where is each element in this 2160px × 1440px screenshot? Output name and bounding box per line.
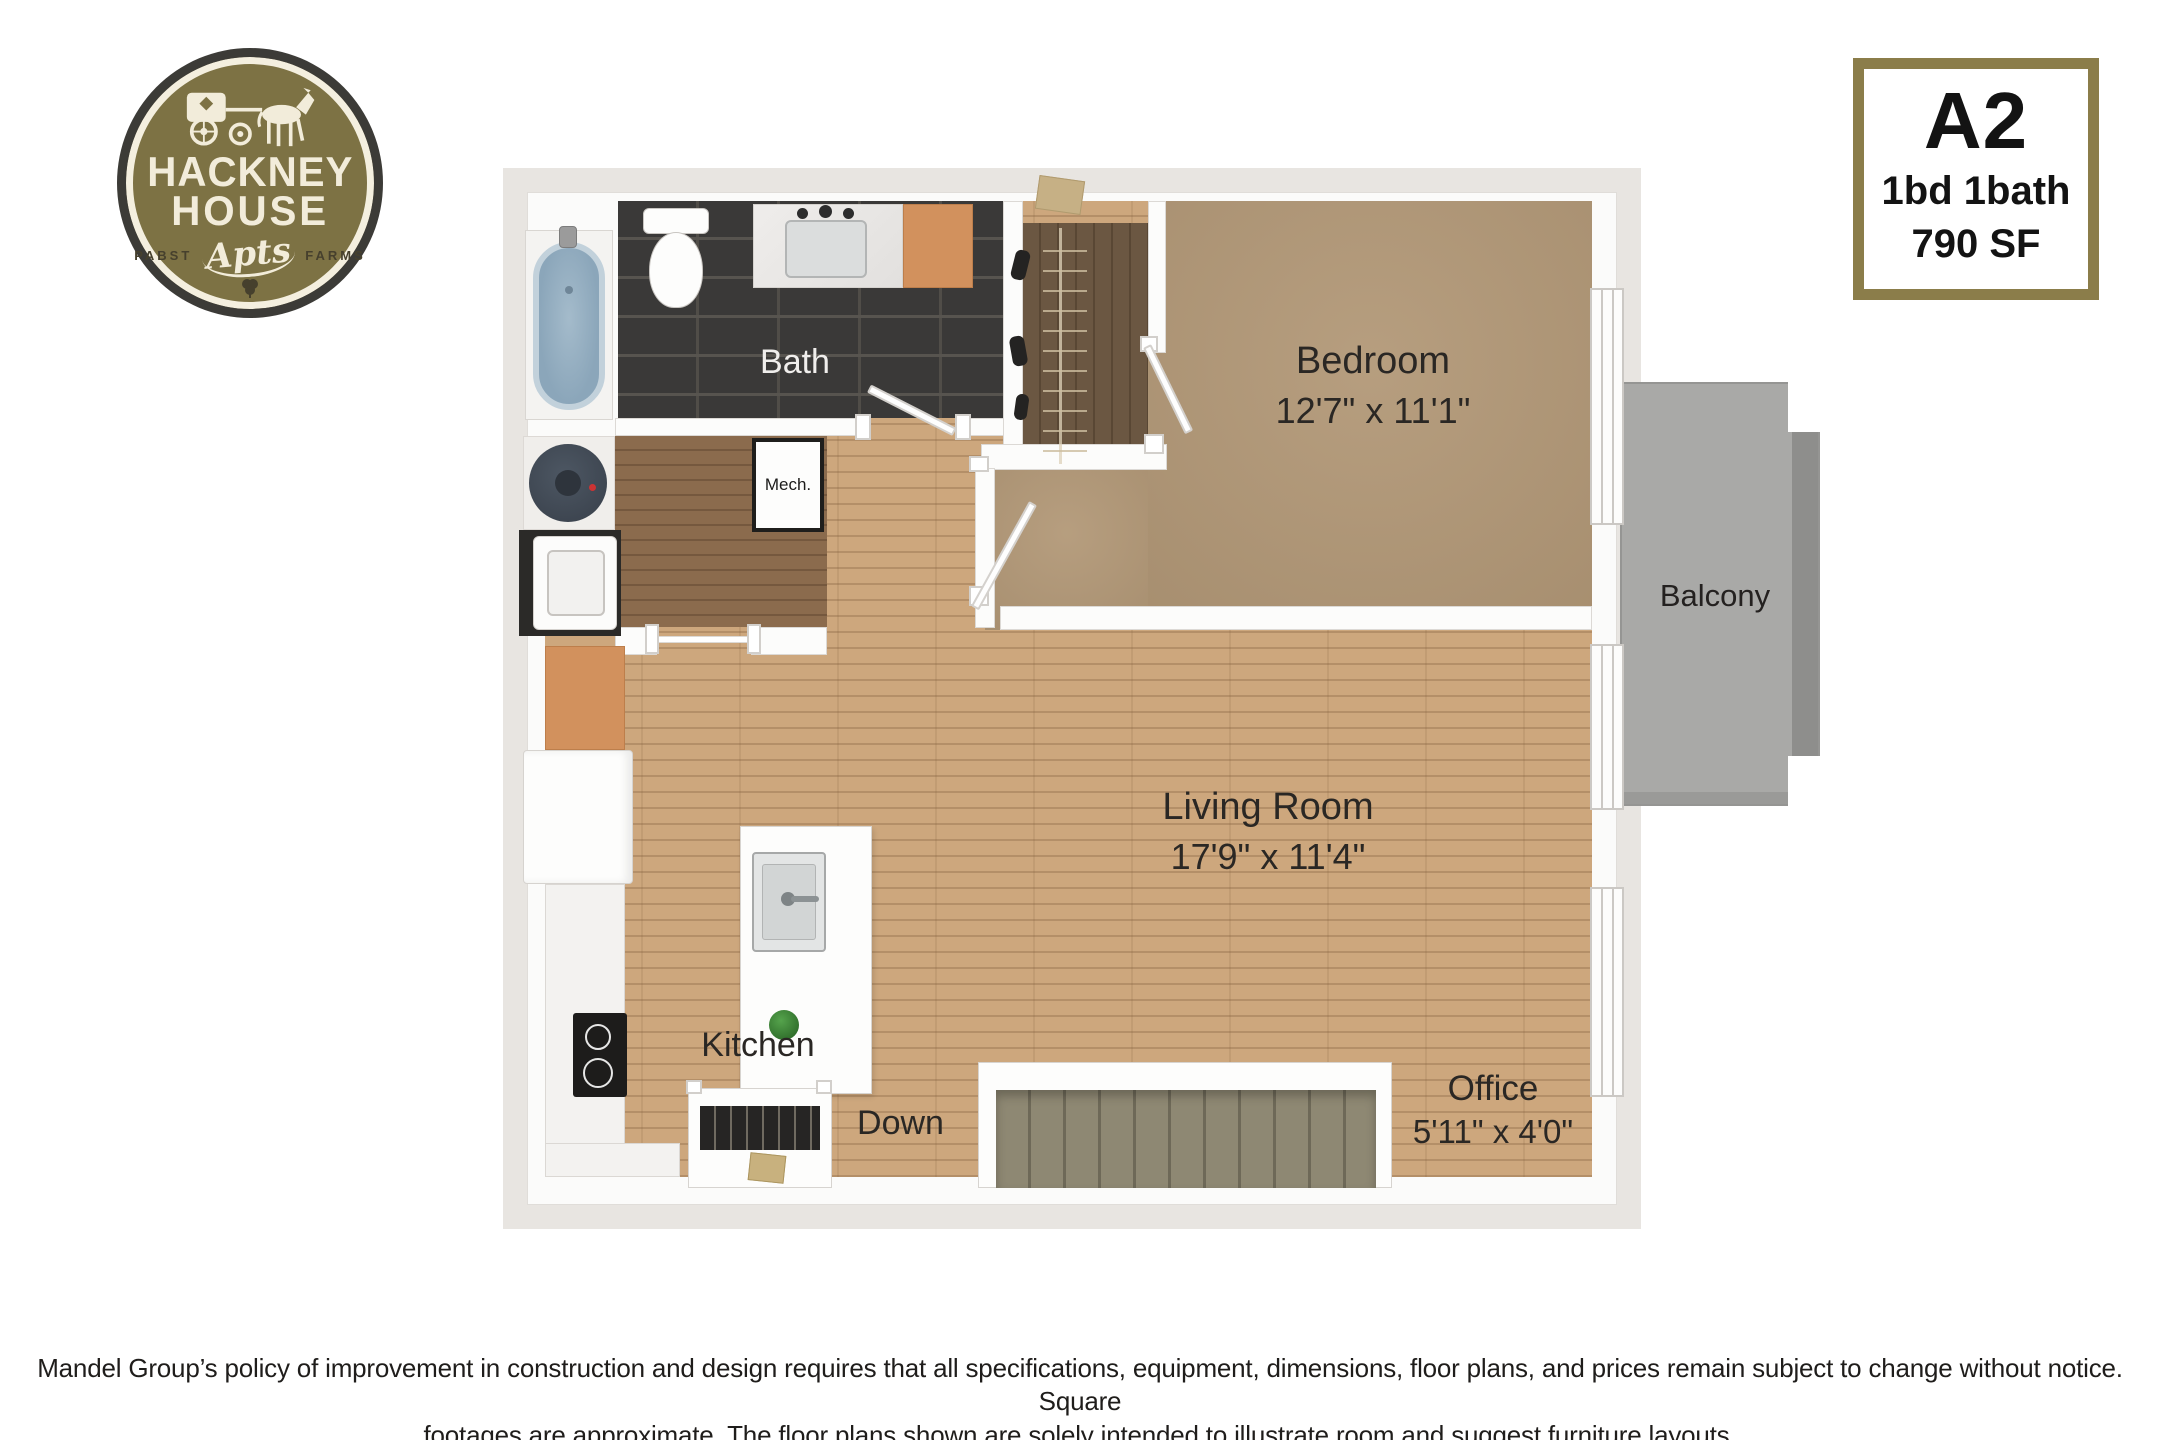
- hop-leaf-icon: [239, 278, 261, 298]
- washer-drum: [555, 470, 581, 496]
- dryer-door: [547, 550, 605, 616]
- balcony-notch: [1788, 378, 1826, 432]
- entry-closet-post: [686, 1080, 702, 1094]
- window-mullion: [1612, 290, 1614, 523]
- logo-sub-left: PABST: [134, 248, 192, 263]
- closet-hangers: [1043, 232, 1087, 458]
- unit-id: A2: [1864, 81, 2088, 161]
- bedroom-name: Bedroom: [1296, 340, 1450, 382]
- stairs-treads: [996, 1090, 1376, 1188]
- toilet: [649, 232, 703, 308]
- bedroom-bottom-wall: [1000, 606, 1592, 630]
- stove-burner: [585, 1024, 611, 1050]
- window-mullion: [1612, 889, 1614, 1095]
- kitchen-cabinet-upper: [545, 646, 625, 750]
- bath-bottom-wall-left: [615, 418, 871, 436]
- bath-door-post: [955, 414, 971, 440]
- bedroom-nook-post: [969, 456, 989, 472]
- stove-burner: [583, 1058, 613, 1088]
- floor-plan: Mech. Bath Bedroom 12'7": [503, 168, 1641, 1229]
- window-mullion: [1601, 646, 1603, 808]
- horse-carriage-icon: [175, 83, 325, 151]
- entry-closet-box: [748, 1152, 787, 1184]
- bath-cabinet: [903, 204, 973, 288]
- bedroom-dims: 12'7" x 11'1": [1193, 390, 1553, 431]
- toilet-tank: [643, 208, 709, 234]
- stairs-down-label: Down: [828, 1104, 973, 1143]
- disclaimer-line1: Mandel Group’s policy of improvement in …: [0, 1352, 2160, 1419]
- bathtub: [533, 242, 605, 410]
- tub-drain: [565, 286, 573, 294]
- kitchen-label: Kitchen: [678, 1026, 838, 1065]
- hall-door-post: [645, 624, 659, 654]
- unit-square-feet: 790 SF: [1864, 222, 2088, 267]
- unit-info-card: A2 1bd 1bath 790 SF: [1853, 58, 2099, 300]
- window-mullion: [1612, 646, 1614, 808]
- bedroom-window: [1590, 288, 1624, 525]
- mech-closet: Mech.: [752, 438, 824, 532]
- mech-label: Mech.: [765, 475, 811, 495]
- entry-closet-post: [816, 1080, 832, 1094]
- floorplan-page: HACKNEY HOUSE PABST Apts FARMS A2 1bd 1b…: [0, 0, 2160, 1440]
- faucet-spout: [819, 205, 832, 218]
- disclaimer-line2: footages are approximate. The floor plan…: [0, 1419, 2160, 1440]
- hall-bottom-wall-right: [751, 627, 827, 655]
- closet-right-wall: [1148, 201, 1166, 353]
- hall-door-post: [747, 624, 761, 654]
- office-label: Office 5'11" x 4'0": [1393, 1069, 1593, 1151]
- kitchen-counter-bottom: [545, 1143, 680, 1177]
- window-mullion: [1601, 290, 1603, 523]
- office-name: Office: [1448, 1069, 1539, 1108]
- entry-closet-interior: [700, 1106, 820, 1150]
- disclaimer-text: Mandel Group’s policy of improvement in …: [0, 1352, 2160, 1440]
- bath-door-post: [855, 414, 871, 440]
- logo-sub-script: Apts: [201, 230, 297, 281]
- balcony-door-window: [1590, 644, 1624, 810]
- bath-sink: [785, 220, 867, 278]
- logo-subtitle: PABST Apts FARMS: [134, 234, 366, 276]
- balcony-notch: [1788, 756, 1826, 810]
- faucet-handle: [843, 208, 854, 219]
- living-room-window: [1590, 887, 1624, 1097]
- faucet-handle: [797, 208, 808, 219]
- bath-label: Bath: [715, 343, 875, 382]
- hackney-house-logo: HACKNEY HOUSE PABST Apts FARMS: [117, 48, 383, 318]
- hall-sliding-door: [655, 636, 753, 643]
- window-mullion: [1601, 889, 1603, 1095]
- island-faucet-bar: [791, 896, 819, 902]
- closet-storage-box: [1035, 175, 1085, 215]
- living-room-label: Living Room 17'9" x 11'4": [1093, 786, 1443, 877]
- living-room-name: Living Room: [1162, 786, 1373, 828]
- tub-faucet: [559, 226, 577, 248]
- office-dims: 5'11" x 4'0": [1393, 1113, 1593, 1151]
- refrigerator: [523, 750, 633, 884]
- unit-beds-baths: 1bd 1bath: [1864, 169, 2088, 214]
- logo-sub-right: FARMS: [305, 248, 366, 263]
- closet-door-post: [1144, 434, 1164, 454]
- living-room-dims: 17'9" x 11'4": [1093, 836, 1443, 877]
- washer-light: [589, 484, 596, 491]
- logo-title-line2: HOUSE: [171, 192, 329, 231]
- bedroom-label: Bedroom 12'7" x 11'1": [1193, 340, 1553, 431]
- balcony-label: Balcony: [1630, 578, 1800, 614]
